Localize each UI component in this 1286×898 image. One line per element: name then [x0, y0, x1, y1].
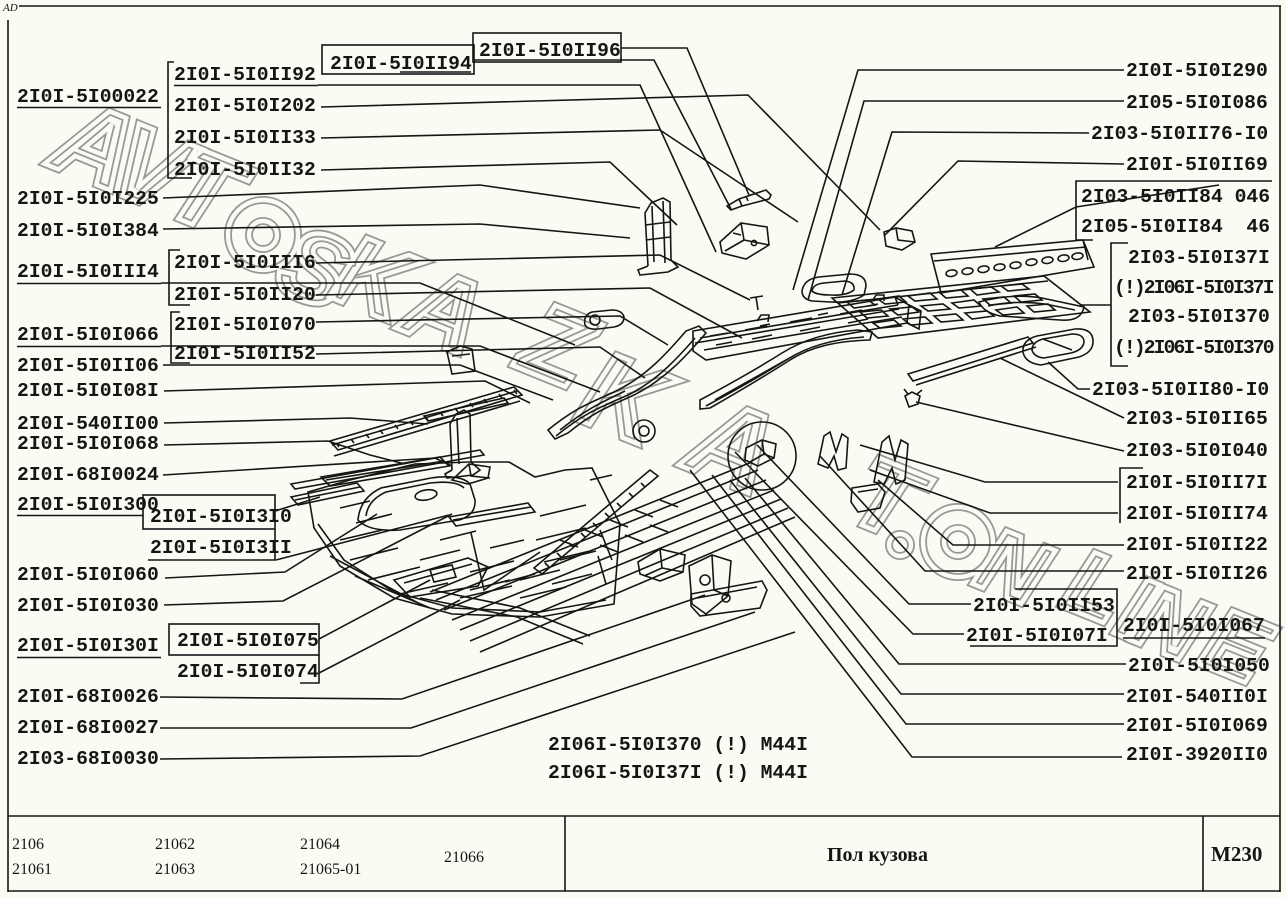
svg-text:2I03-5I0I040: 2I03-5I0I040	[1126, 440, 1268, 462]
svg-text:2I0I-5I0I066: 2I0I-5I0I066	[17, 324, 159, 346]
svg-text:21063: 21063	[155, 861, 195, 878]
svg-text:2I06I-5I0I370 (!) M44I: 2I06I-5I0I370 (!) M44I	[548, 734, 808, 756]
svg-text:2I0I-68I0024: 2I0I-68I0024	[17, 464, 159, 486]
svg-text:2I03-5I0II76-I0: 2I03-5I0II76-I0	[1091, 123, 1268, 145]
svg-text:2I0I-68I0027: 2I0I-68I0027	[17, 717, 159, 739]
svg-text:2I0I-5I0II53: 2I0I-5I0II53	[973, 595, 1115, 617]
svg-text:2I03-5I0I37I: 2I03-5I0I37I	[1128, 247, 1270, 269]
svg-text:2I0I-5I0I225: 2I0I-5I0I225	[17, 188, 159, 210]
svg-text:2I05-5I0II84 46: 2I05-5I0II84 46	[1081, 216, 1270, 238]
svg-text:2I0I-5I0II96: 2I0I-5I0II96	[479, 40, 621, 62]
svg-text:2I0I-5I0I202: 2I0I-5I0I202	[174, 95, 316, 117]
svg-text:2I0I-5I0I074: 2I0I-5I0I074	[177, 661, 319, 683]
svg-text:2I0I-5I0II74: 2I0I-5I0II74	[1126, 503, 1268, 525]
svg-text:2I0I-5I0II26: 2I0I-5I0II26	[1126, 563, 1268, 585]
svg-text:Пол кузова: Пол кузова	[827, 844, 928, 866]
svg-text:2I03-5I0II84 046: 2I03-5I0II84 046	[1081, 186, 1270, 208]
svg-text:2I0I-5I0II69: 2I0I-5I0II69	[1126, 154, 1268, 176]
svg-text:(!)2I06I-5I0I370: (!)2I06I-5I0I370	[1114, 337, 1274, 359]
svg-text:2I0I-5I0I300: 2I0I-5I0I300	[17, 494, 159, 516]
svg-text:2106: 2106	[12, 836, 44, 853]
svg-text:2I0I-5I0I068: 2I0I-5I0I068	[17, 433, 159, 455]
svg-text:2I0I-5I0I07I: 2I0I-5I0I07I	[966, 625, 1108, 647]
svg-text:2I0I-5I0II06: 2I0I-5I0II06	[17, 355, 159, 377]
svg-text:21064: 21064	[300, 836, 340, 853]
svg-text:2I0I-5I0I30I: 2I0I-5I0I30I	[17, 635, 159, 657]
svg-text:2I03-5I0II80-I0: 2I03-5I0II80-I0	[1092, 379, 1269, 401]
svg-text:2I05-5I0I086: 2I05-5I0I086	[1126, 92, 1268, 114]
svg-text:21065-01: 21065-01	[300, 861, 361, 878]
svg-text:AD: AD	[2, 2, 18, 14]
svg-text:2I0I-5I0I3II: 2I0I-5I0I3II	[150, 537, 292, 559]
svg-text:2I0I-5I0III6: 2I0I-5I0III6	[174, 252, 316, 274]
svg-text:2I03-5I0I370: 2I03-5I0I370	[1128, 306, 1270, 328]
svg-text:2I0I-5I0I050: 2I0I-5I0I050	[1128, 655, 1270, 677]
svg-text:2I0I-5I0I069: 2I0I-5I0I069	[1126, 715, 1268, 737]
svg-text:2I0I-540II00: 2I0I-540II00	[17, 413, 159, 435]
svg-text:2I03-68I0030: 2I03-68I0030	[17, 748, 159, 770]
svg-text:2I0I-5I0II92: 2I0I-5I0II92	[174, 64, 316, 86]
svg-text:21061: 21061	[12, 861, 52, 878]
svg-text:2I0I-5I0I3I0: 2I0I-5I0I3I0	[150, 506, 292, 528]
svg-text:2I0I-5I0II22: 2I0I-5I0II22	[1126, 534, 1268, 556]
svg-text:(!)2I06I-5I0I37I: (!)2I06I-5I0I37I	[1114, 277, 1274, 299]
svg-text:2I0I-5I0I075: 2I0I-5I0I075	[177, 630, 319, 652]
svg-text:2I0I-5I0I067: 2I0I-5I0I067	[1123, 615, 1265, 637]
svg-text:2I0I-540II0I: 2I0I-540II0I	[1126, 686, 1268, 708]
svg-text:2I0I-5I00022: 2I0I-5I00022	[17, 86, 159, 108]
svg-text:2I0I-5I0I070: 2I0I-5I0I070	[174, 314, 316, 336]
svg-text:2I0I-5I0II32: 2I0I-5I0II32	[174, 159, 316, 181]
svg-text:2I0I-5I0I060: 2I0I-5I0I060	[17, 564, 159, 586]
svg-text:2I03-5I0II65: 2I03-5I0II65	[1126, 408, 1268, 430]
svg-text:2I0I-5I0I08I: 2I0I-5I0I08I	[17, 380, 159, 402]
svg-text:2I0I-5I0II7I: 2I0I-5I0II7I	[1126, 472, 1268, 494]
svg-text:2I06I-5I0I37I (!) M44I: 2I06I-5I0I37I (!) M44I	[548, 762, 808, 784]
svg-text:2I0I-68I0026: 2I0I-68I0026	[17, 686, 159, 708]
svg-text:2I0I-3920II0: 2I0I-3920II0	[1126, 744, 1268, 766]
svg-text:2I0I-5I0I030: 2I0I-5I0I030	[17, 595, 159, 617]
svg-text:2I0I-5I0III4: 2I0I-5I0III4	[17, 261, 159, 283]
svg-text:2I0I-5I0I290: 2I0I-5I0I290	[1126, 60, 1268, 82]
svg-text:2I0I-5I0I384: 2I0I-5I0I384	[17, 220, 159, 242]
svg-text:2I0I-5I0II33: 2I0I-5I0II33	[174, 127, 316, 149]
svg-text:М230: М230	[1211, 842, 1262, 866]
svg-text:21062: 21062	[155, 836, 195, 853]
svg-text:2I0I-5I0II20: 2I0I-5I0II20	[174, 284, 316, 306]
svg-text:21066: 21066	[444, 849, 484, 866]
